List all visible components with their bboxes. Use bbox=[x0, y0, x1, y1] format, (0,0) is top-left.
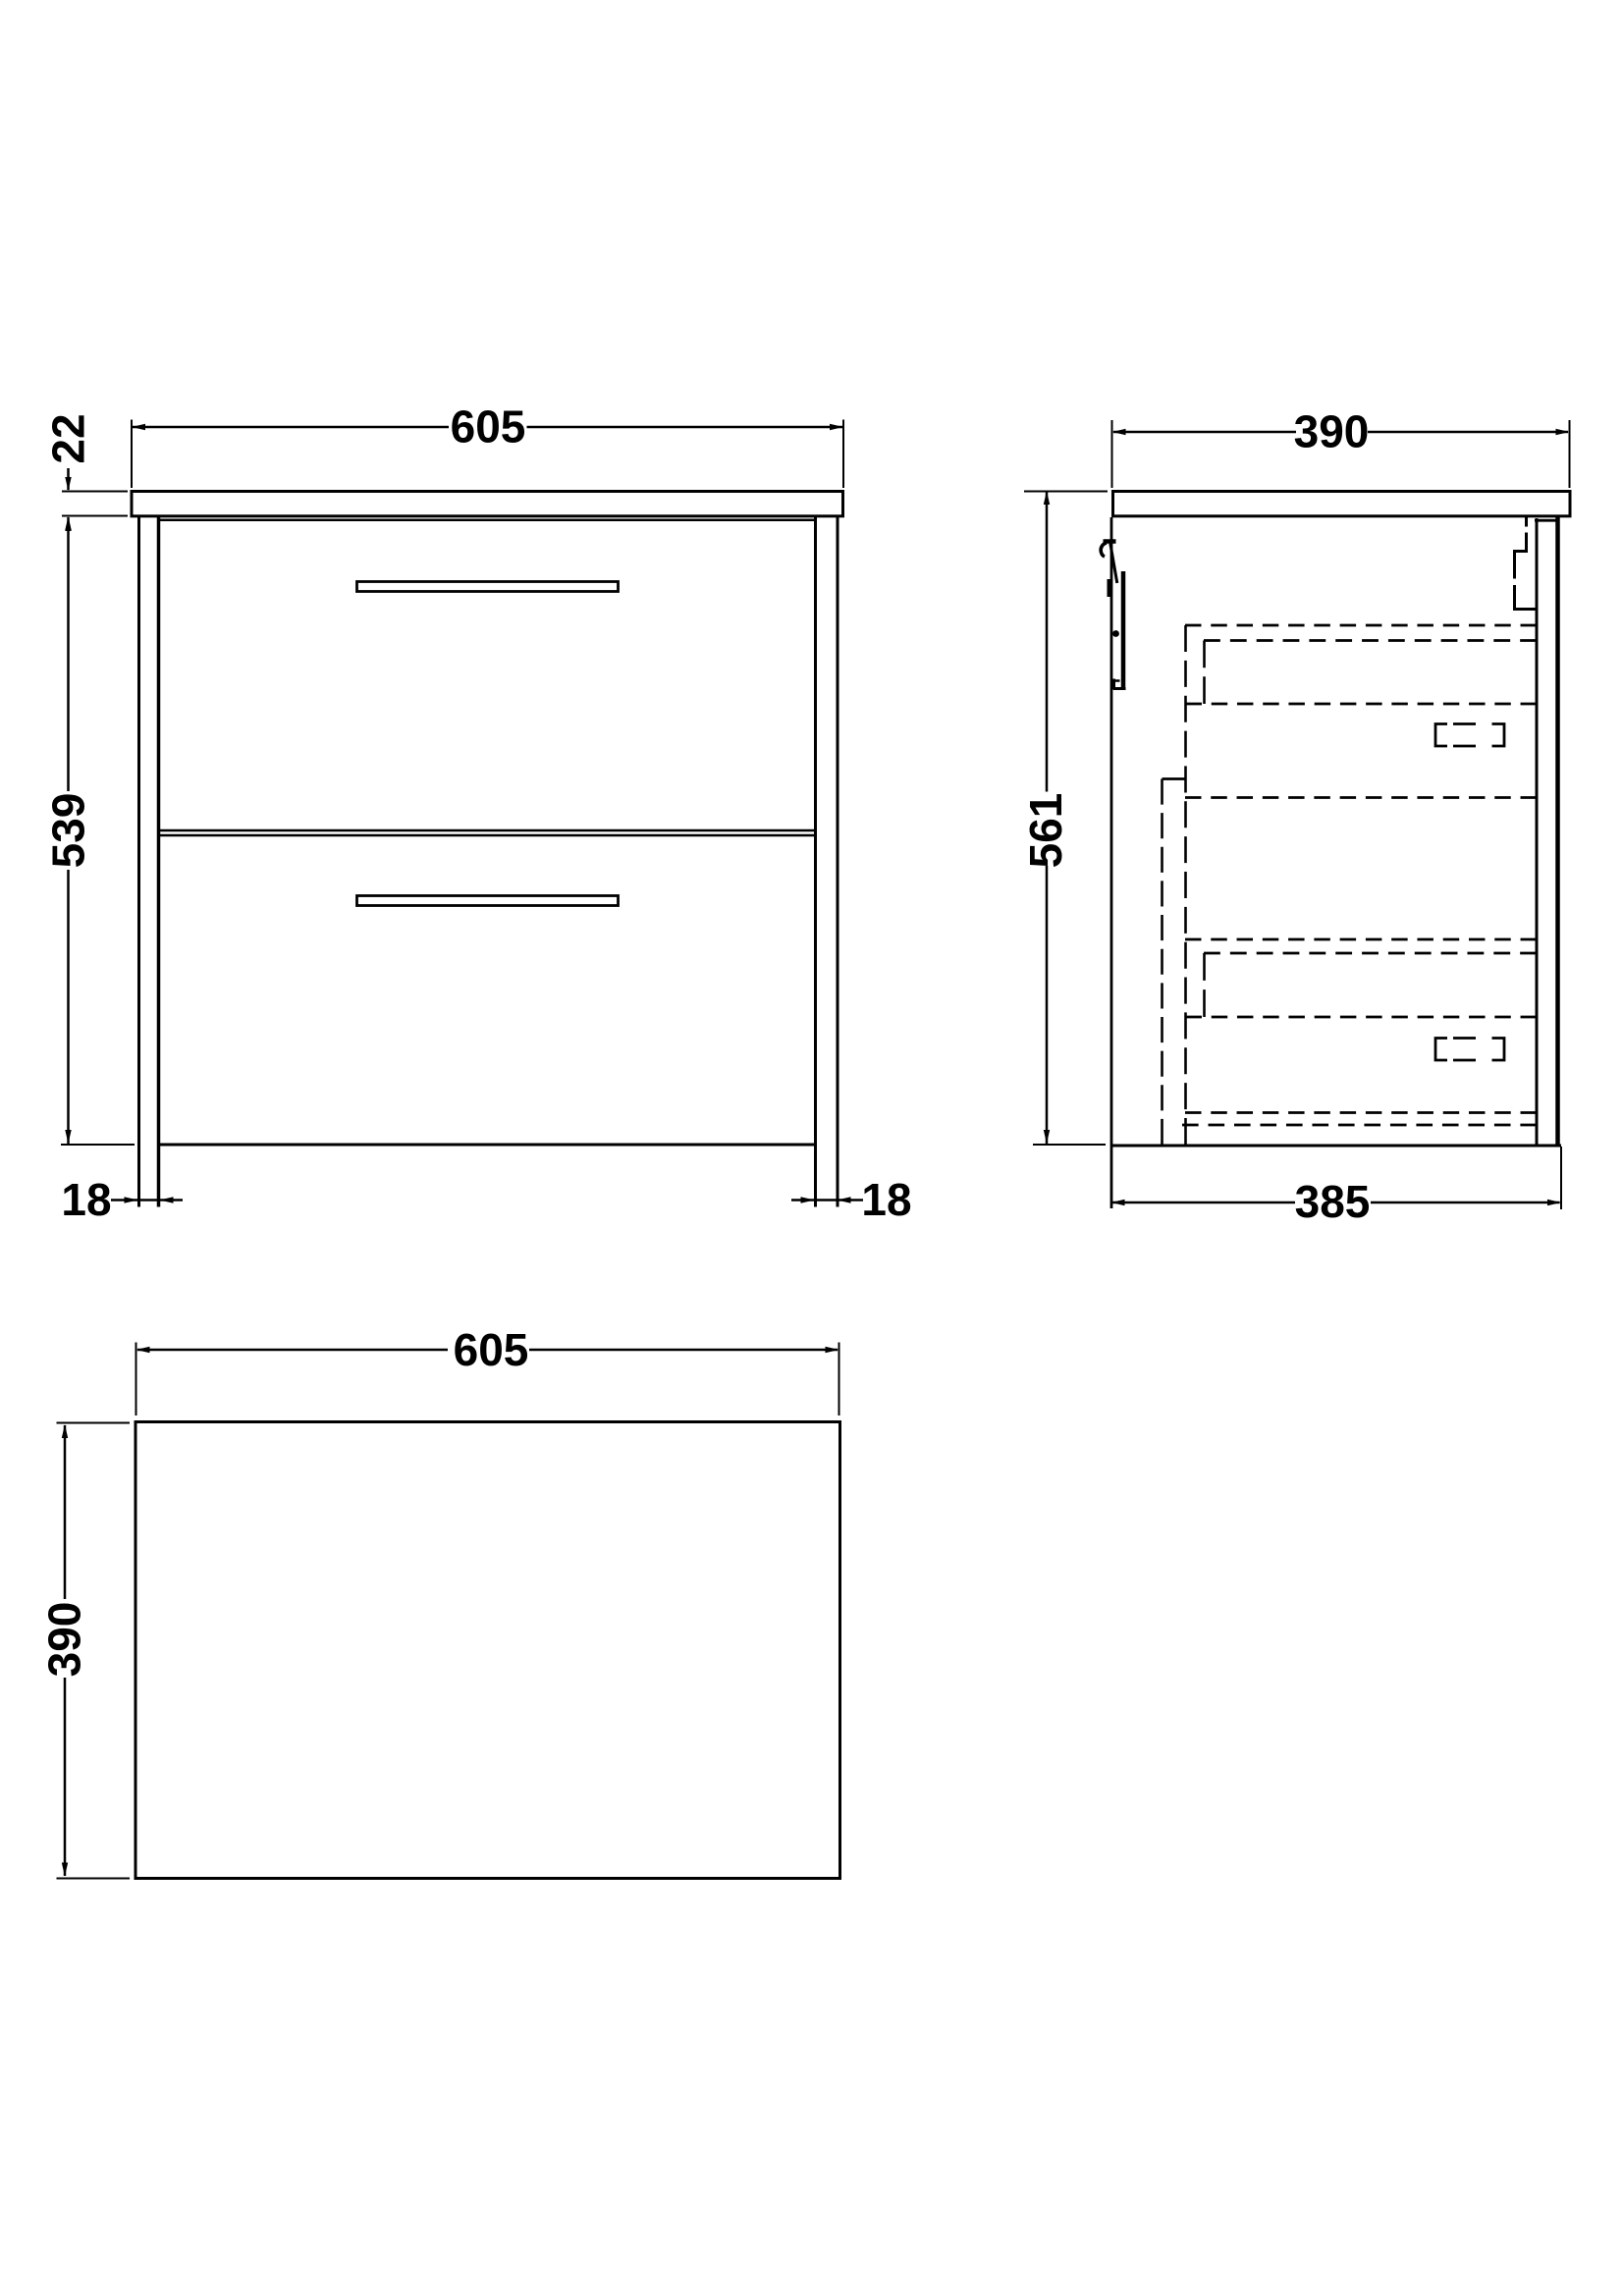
svg-text:539: 539 bbox=[43, 793, 94, 869]
svg-text:605: 605 bbox=[451, 401, 526, 453]
svg-text:385: 385 bbox=[1295, 1176, 1371, 1227]
svg-text:18: 18 bbox=[61, 1174, 111, 1225]
svg-text:605: 605 bbox=[454, 1324, 529, 1375]
svg-text:390: 390 bbox=[1294, 406, 1370, 457]
svg-text:390: 390 bbox=[39, 1602, 90, 1678]
svg-text:22: 22 bbox=[43, 413, 94, 463]
svg-text:18: 18 bbox=[861, 1174, 911, 1225]
svg-text:561: 561 bbox=[1020, 793, 1071, 869]
